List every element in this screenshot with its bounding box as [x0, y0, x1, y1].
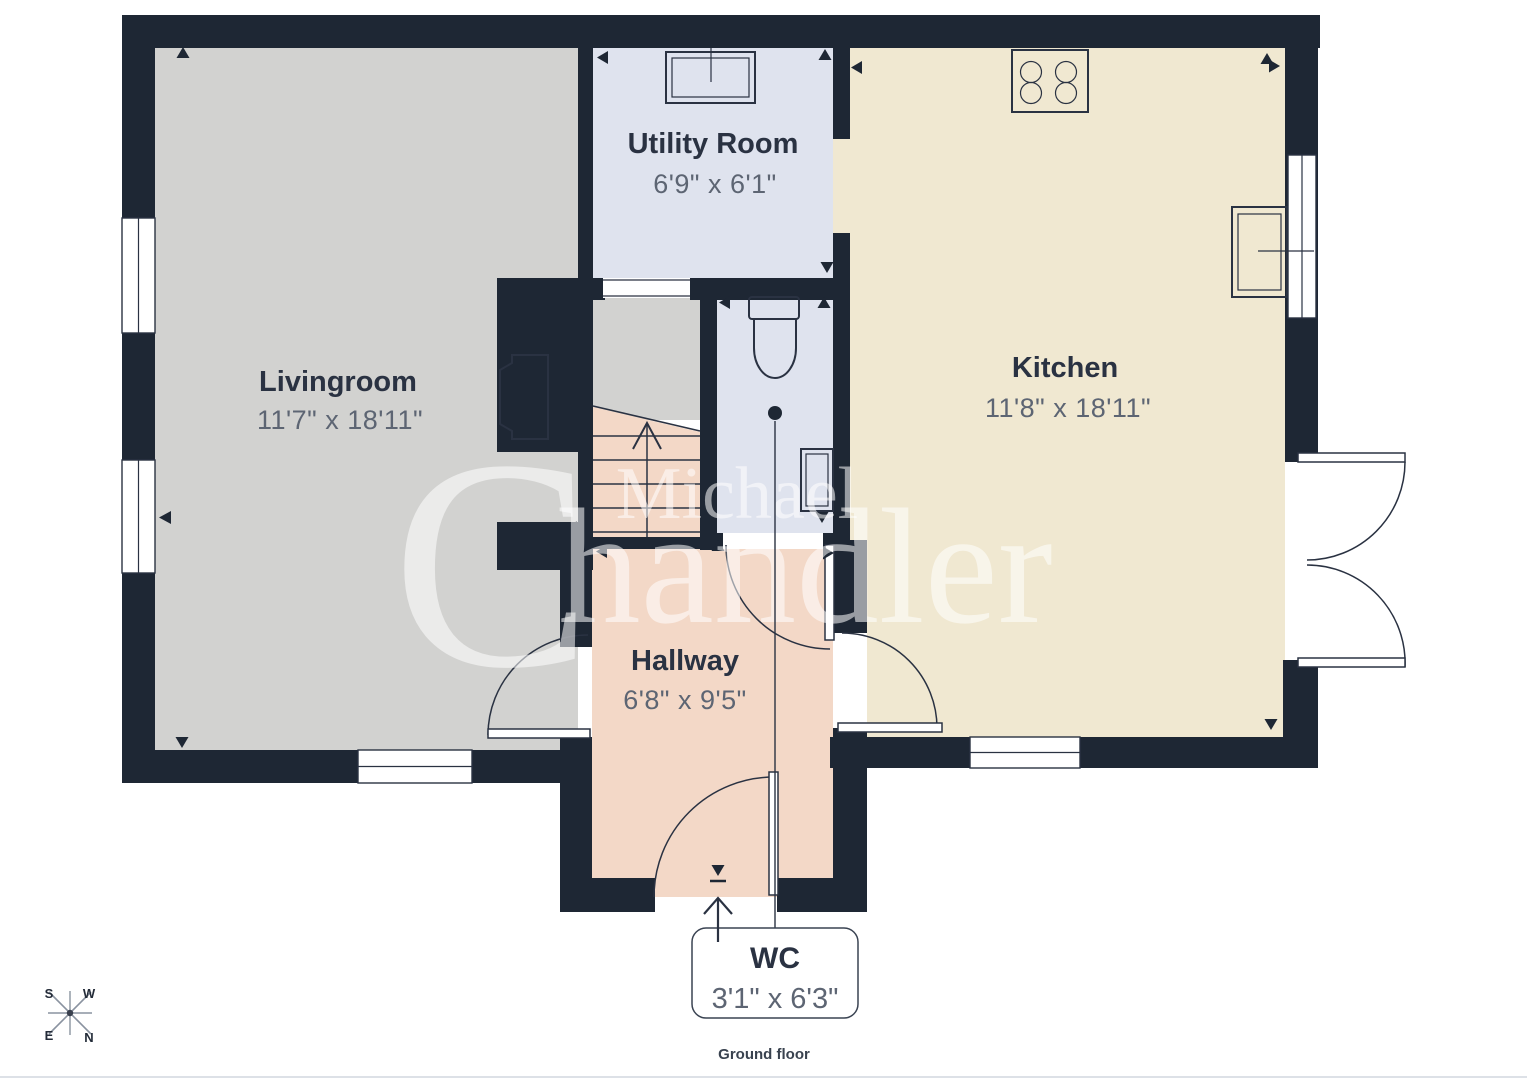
- livingroom-dims: 11'7" x 18'11": [257, 405, 423, 435]
- wc-dims: 3'1" x 6'3": [712, 983, 839, 1015]
- compass-north: N: [84, 1030, 93, 1045]
- floorplan-svg: Michael C handler Livingroom 11'7" x 18'…: [0, 0, 1527, 1080]
- utility-kitchen-opening: [833, 139, 850, 233]
- kitchen-dims: 11'8" x 18'11": [985, 393, 1151, 423]
- floorplan-page: Michael C handler Livingroom 11'7" x 18'…: [0, 0, 1527, 1080]
- french-doors: [1298, 453, 1405, 667]
- hallway-dims: 6'8" x 9'5": [623, 685, 747, 715]
- utility-threshold: [603, 278, 690, 298]
- compass-icon: S W E N: [45, 986, 96, 1045]
- utility-dims: 6'9" x 6'1": [653, 169, 777, 199]
- compass-south: S: [45, 986, 54, 1001]
- livingroom-window-bottom: [358, 750, 472, 783]
- livingroom-label: Livingroom: [259, 366, 417, 398]
- watermark-line2: handler: [558, 475, 1053, 658]
- hallway-label: Hallway: [631, 645, 739, 677]
- livingroom-window-upper: [122, 218, 155, 333]
- wc-label: WC: [750, 942, 800, 975]
- wc-leader-dot: [768, 406, 782, 420]
- kitchen-window-bottom: [970, 737, 1080, 768]
- page-bottom-divider: [0, 1076, 1527, 1078]
- kitchen-label: Kitchen: [1012, 352, 1118, 384]
- livingroom-window-lower: [122, 460, 155, 573]
- kitchen-window-right: [1288, 155, 1316, 318]
- stair-landing: [593, 297, 700, 420]
- utility-label: Utility Room: [628, 128, 799, 160]
- room-utility: [593, 48, 833, 278]
- compass-west: W: [83, 986, 96, 1001]
- floor-caption: Ground floor: [718, 1046, 810, 1063]
- compass-east: E: [45, 1028, 54, 1043]
